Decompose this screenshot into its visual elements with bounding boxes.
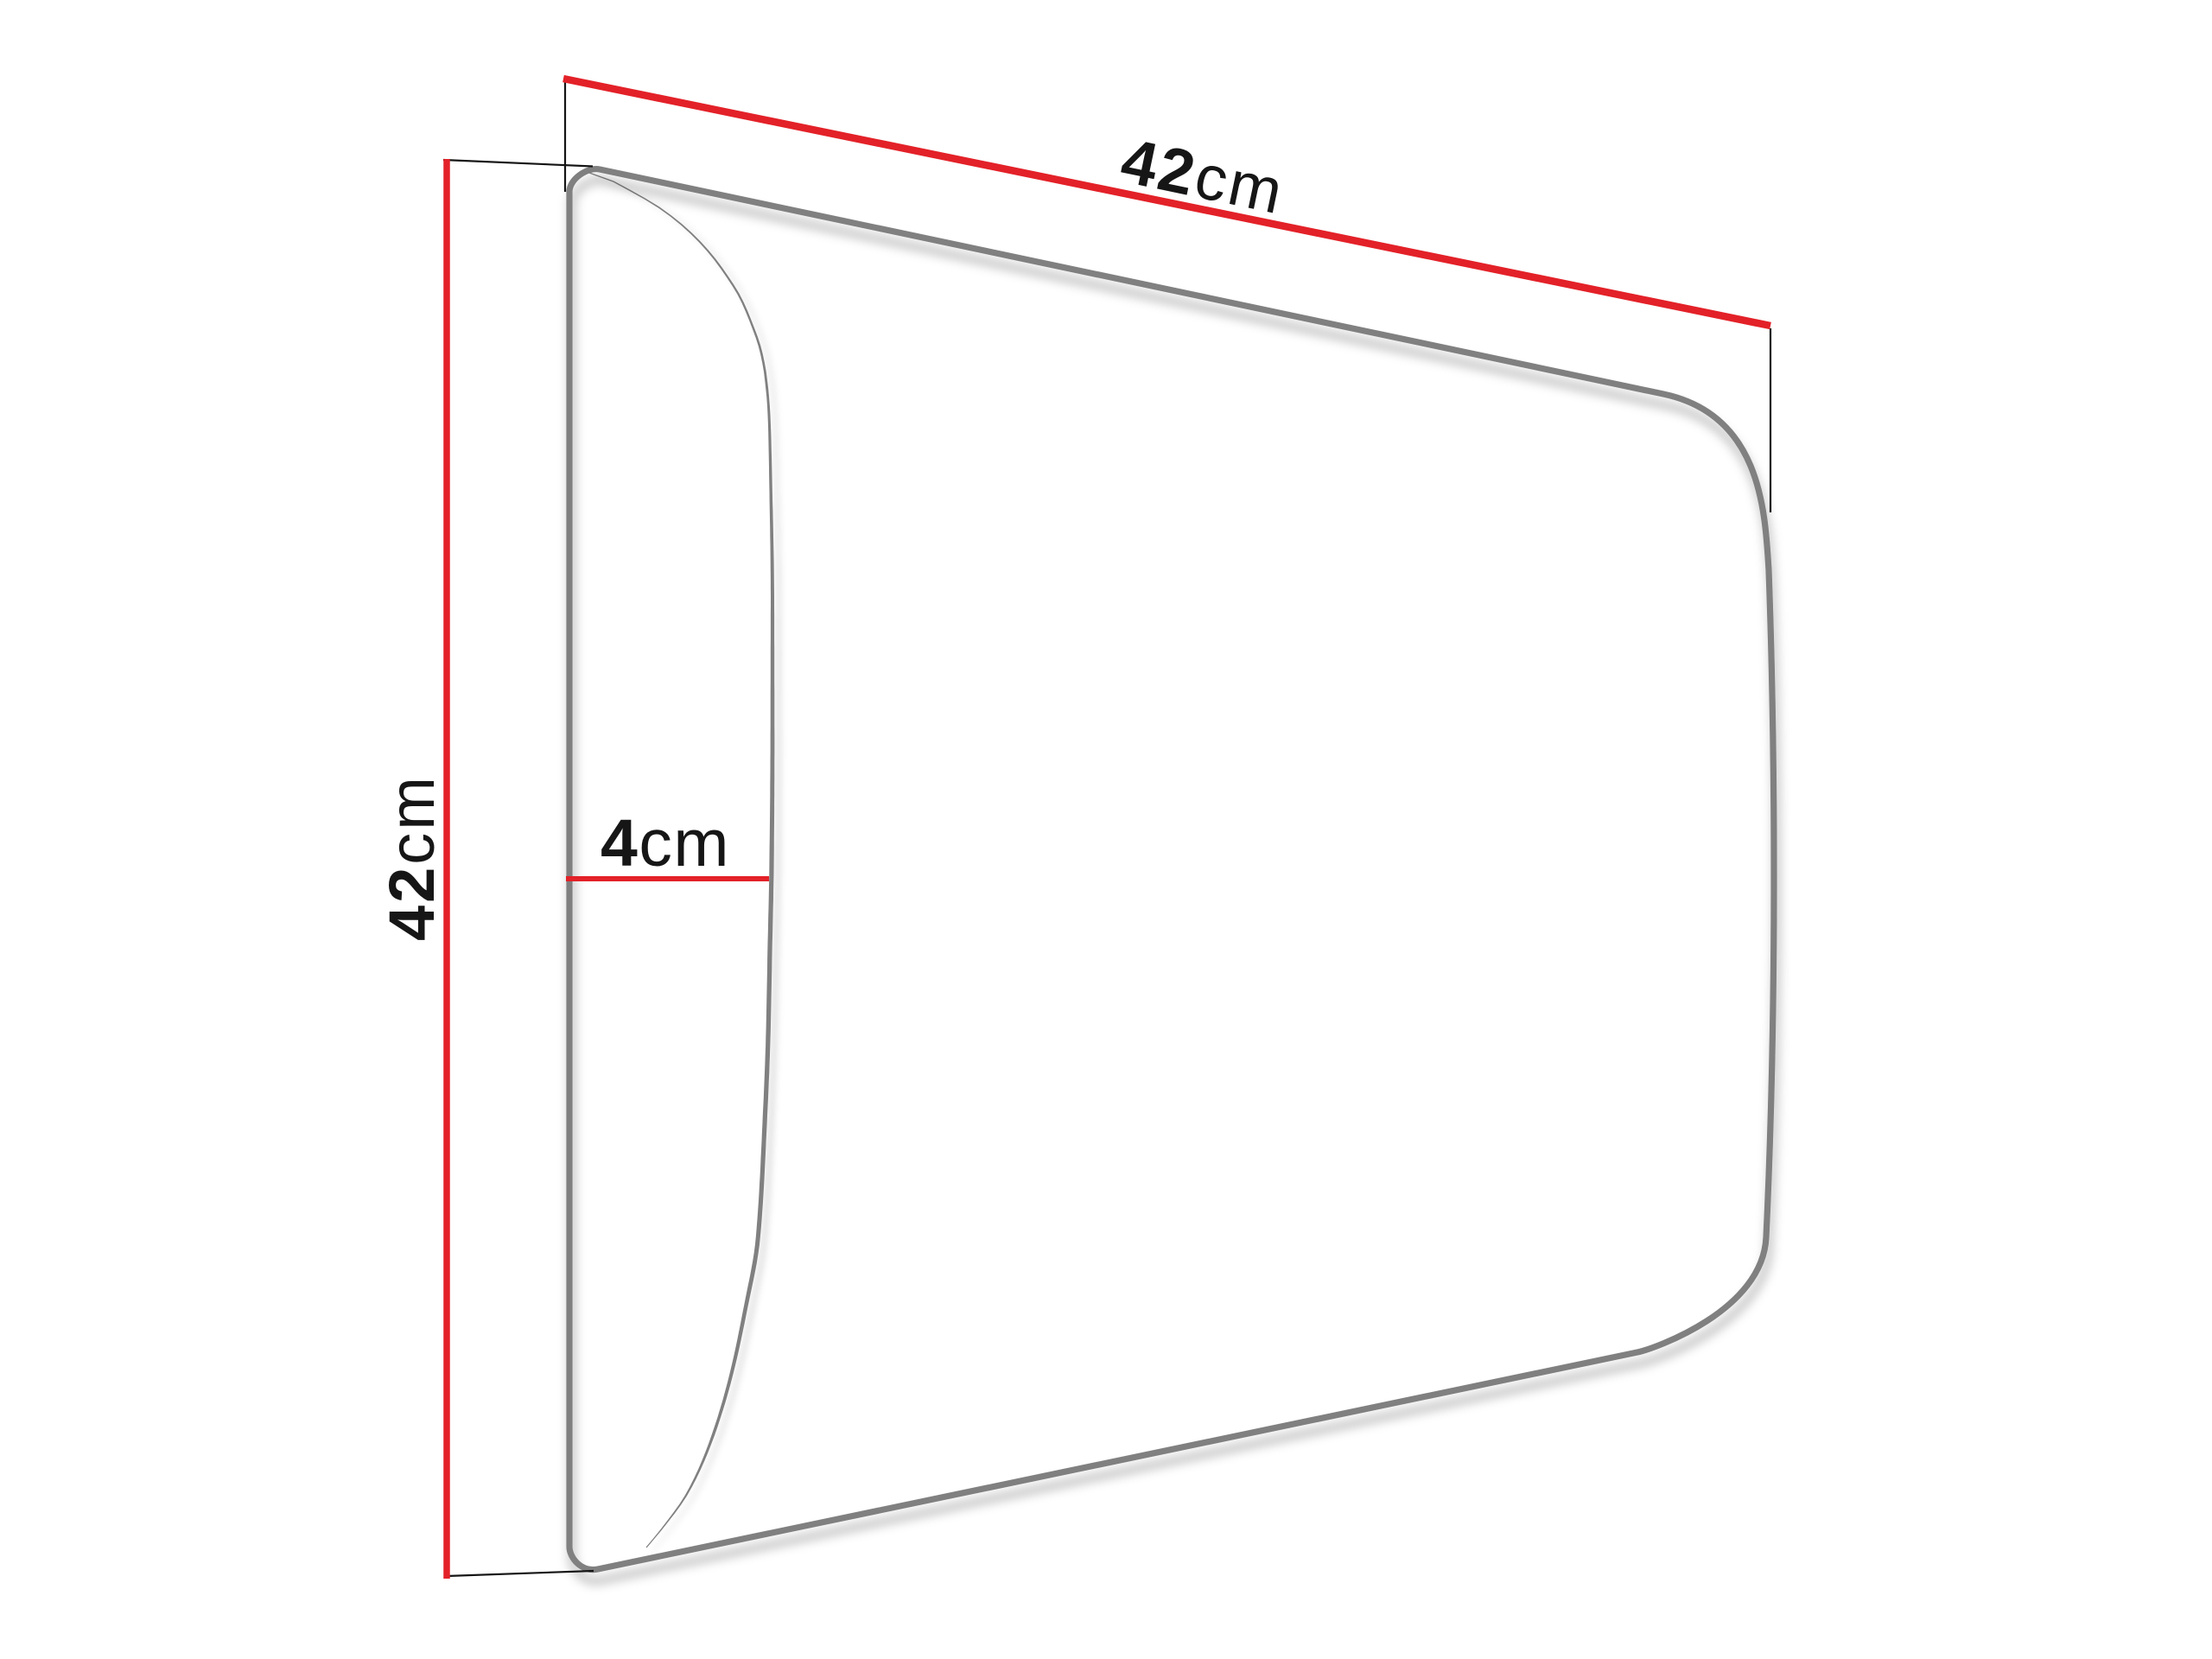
svg-text:4cm: 4cm: [601, 806, 730, 880]
svg-text:42cm: 42cm: [376, 774, 448, 941]
